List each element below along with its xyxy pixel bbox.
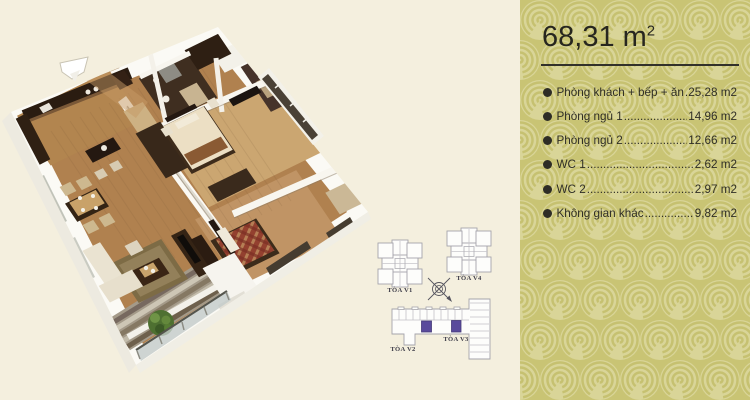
svg-text:TÒA V2: TÒA V2 — [390, 345, 416, 353]
svg-text:TÒA V3: TÒA V3 — [443, 335, 469, 343]
svg-text:TÒA V1: TÒA V1 — [387, 286, 412, 294]
svg-text:TÒA V4: TÒA V4 — [456, 274, 482, 282]
